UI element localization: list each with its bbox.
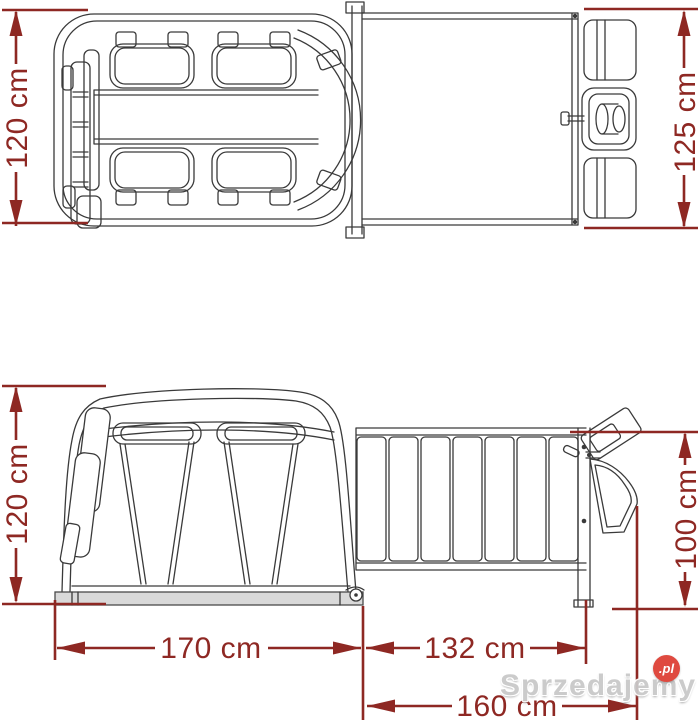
side-rear-height-label: 100 cm (670, 468, 699, 569)
plan-platform-deck (362, 13, 578, 225)
plan-dome-arc (294, 30, 361, 210)
watermark-pl-badge: .pl (653, 655, 680, 682)
plan-pocket-bottom-left (110, 148, 194, 205)
dimension-width-170: 170 cm (57, 632, 361, 665)
plan-pocket-top-left (110, 32, 194, 88)
side-height-label: 120 cm (1, 443, 34, 544)
side-view-hopper (580, 406, 643, 533)
dimension-diagram: 120 cm 125 cm 120 cm 100 cm 170 cm (0, 0, 699, 720)
side-dome-leg-right (217, 423, 305, 584)
side-view-fence-panel (346, 428, 593, 607)
side-view-dome (55, 389, 363, 605)
width-platform-label: 132 cm (424, 632, 525, 665)
plan-height-label: 120 cm (1, 67, 34, 168)
plan-pocket-top-right (212, 32, 296, 88)
side-dome-latch-plates (60, 407, 112, 565)
dimension-plan-platform-height-125: 125 cm (584, 9, 699, 228)
technical-drawing-page: 120 cm 125 cm 120 cm 100 cm 170 cm (0, 0, 699, 720)
plan-view-container-body (54, 14, 361, 228)
width-body-label: 170 cm (160, 632, 261, 665)
watermark: Sprzedajemy .pl (500, 669, 696, 703)
plan-pocket-bottom-right (212, 148, 296, 205)
side-dome-leg-left (113, 423, 201, 584)
dimension-width-132: 132 cm (366, 632, 585, 665)
plan-platform-height-label: 125 cm (669, 71, 699, 172)
